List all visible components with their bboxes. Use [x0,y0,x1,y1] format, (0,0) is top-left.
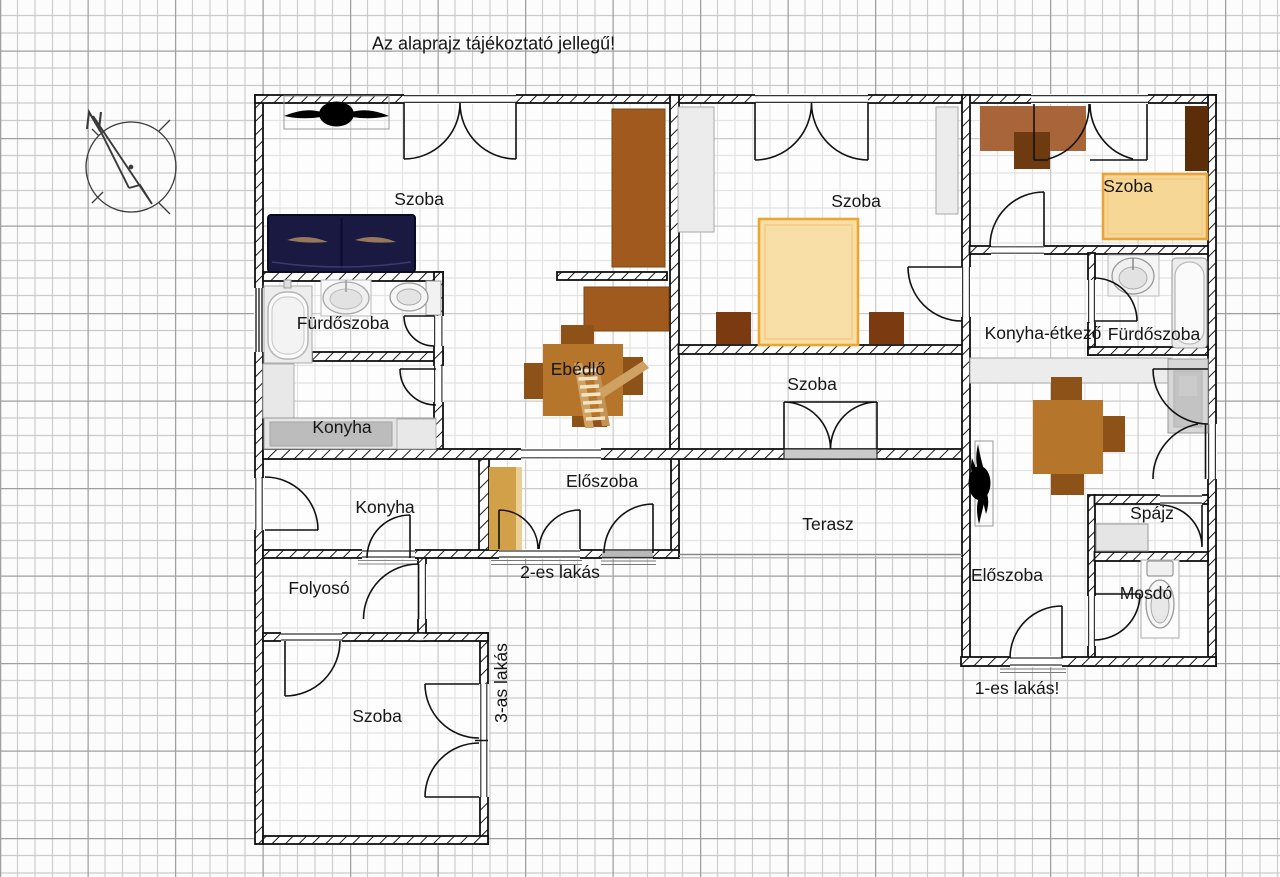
svg-text:Előszoba: Előszoba [566,471,638,491]
svg-text:Fürdőszoba: Fürdőszoba [297,313,390,333]
svg-text:Szoba: Szoba [1103,176,1153,196]
svg-text:2-es lakás: 2-es lakás [520,562,600,582]
svg-text:Folyosó: Folyosó [288,578,349,598]
svg-text:Konyha-étkező: Konyha-étkező [985,323,1102,343]
svg-text:Ebédlő: Ebédlő [551,359,606,379]
svg-text:Szoba: Szoba [394,189,444,209]
svg-text:Előszoba: Előszoba [971,565,1043,585]
svg-text:Az alaprajz tájékoztató jelleg: Az alaprajz tájékoztató jellegű! [372,34,615,54]
svg-text:Szoba: Szoba [831,191,881,211]
svg-text:3-as lakás: 3-as lakás [491,643,511,723]
svg-text:Fürdőszoba: Fürdőszoba [1108,324,1201,344]
svg-text:Terasz: Terasz [802,514,854,534]
svg-text:Szoba: Szoba [352,706,402,726]
svg-text:Konyha: Konyha [312,417,372,437]
svg-text:Konyha: Konyha [355,497,415,517]
svg-text:Mosdó: Mosdó [1120,583,1173,603]
svg-text:Spájz: Spájz [1130,503,1174,523]
svg-text:1-es lakás!: 1-es lakás! [975,678,1060,698]
svg-text:Szoba: Szoba [787,374,837,394]
